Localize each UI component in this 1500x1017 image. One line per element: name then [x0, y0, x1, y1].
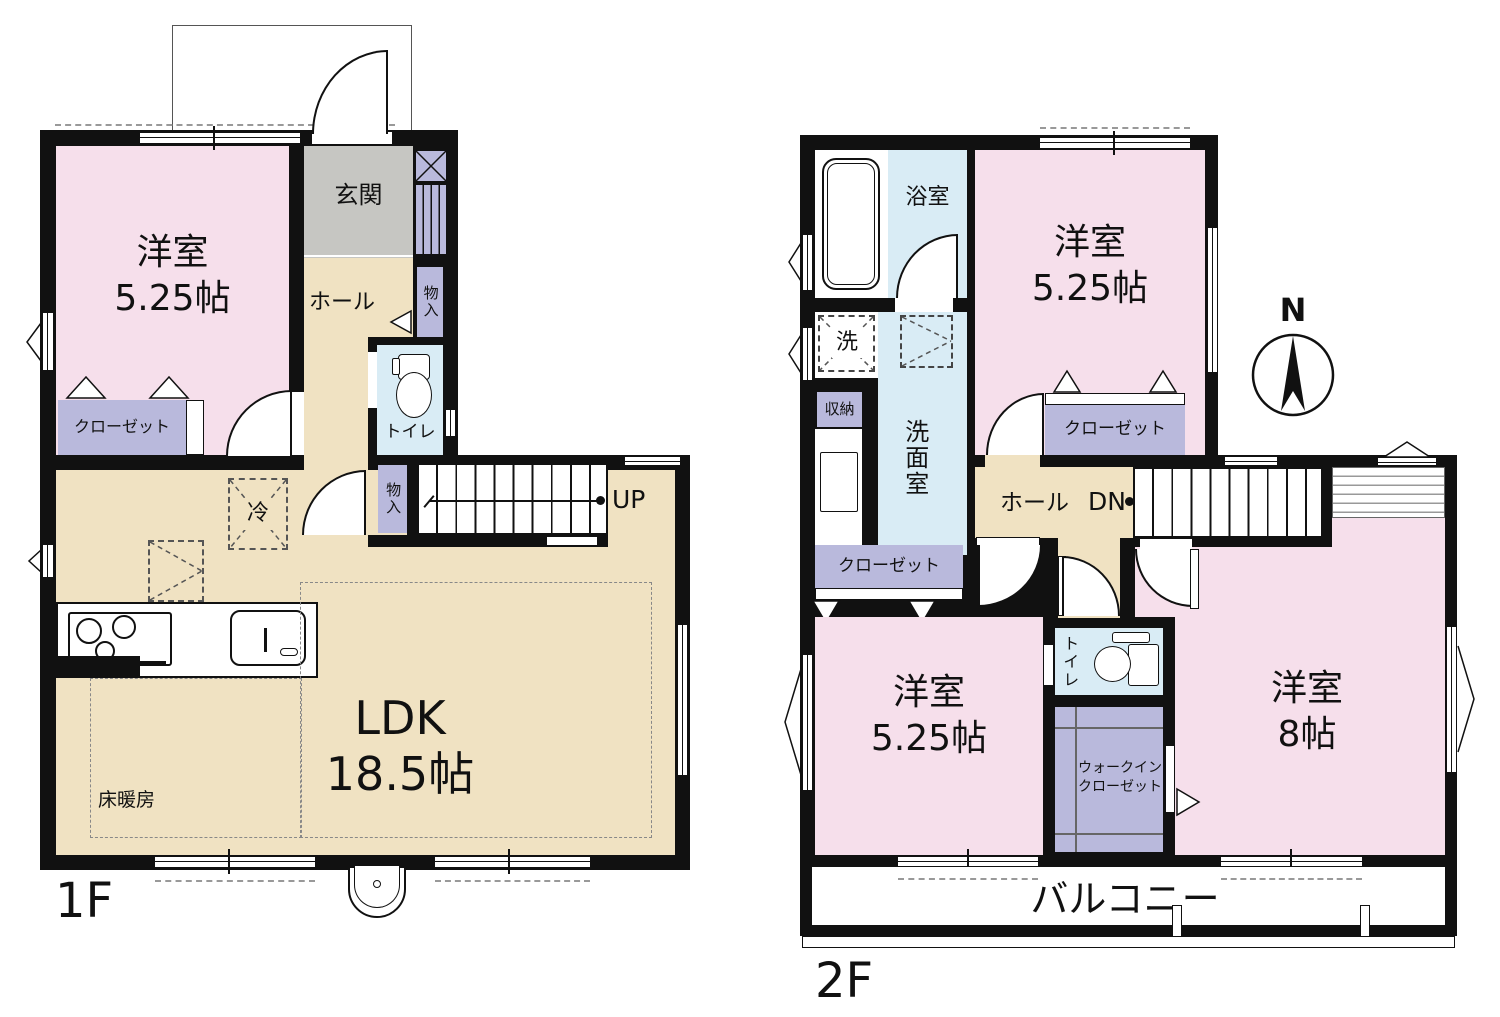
room-toilet-1f-label: トイレ	[377, 423, 443, 443]
window-casement-icon	[788, 334, 802, 374]
closet-1f-fold-icon	[66, 376, 190, 399]
window-1f-ldk-bottom-left	[155, 856, 315, 868]
window-casement-icon	[1457, 645, 1475, 753]
counter-strip	[1332, 467, 1445, 518]
stove-burner-1	[76, 618, 102, 644]
balcony-label: バルコニー	[925, 878, 1325, 922]
room-wic-line2: クローゼット	[1077, 779, 1163, 795]
window-casement-icon	[788, 242, 802, 282]
washbasin	[820, 452, 858, 512]
fridge-label: 冷	[243, 498, 273, 530]
window-2f-bedroom-se-right	[1446, 627, 1457, 772]
window-1f-bedroom-left	[42, 313, 54, 370]
window-2f-bedroom-north-right	[1207, 228, 1218, 372]
stairs-1f-up-label: UP	[612, 486, 645, 515]
room-hall-1f-label: ホール	[309, 290, 375, 315]
window-2f-bedroom-sw-left	[802, 655, 813, 790]
window-2f-counter-top	[1378, 457, 1436, 466]
closet-1f-door	[186, 400, 204, 455]
bathtub-inner	[827, 163, 875, 285]
toilet-1f-door-opening	[368, 352, 377, 408]
stairs-1f-arrow	[430, 500, 600, 502]
appliance-dashed-icon	[148, 540, 204, 602]
stairs-1f	[417, 463, 608, 535]
window-tick	[228, 849, 230, 874]
wic-line-h2	[1055, 833, 1163, 835]
stairs-2f	[1133, 467, 1323, 538]
sink-drain	[280, 648, 298, 656]
room-closet-west-label: クローゼット	[815, 545, 963, 588]
kitchen-sink	[230, 610, 306, 666]
room-wic-line1: ウォークイン	[1077, 760, 1163, 776]
eave-dashed-line	[435, 880, 590, 882]
toilet-2f-lid	[1112, 632, 1150, 643]
bedroom-north-door-opening	[985, 455, 1040, 467]
bathroom-door-opening	[895, 298, 953, 312]
compass-north-label: N	[1263, 292, 1323, 329]
room-bathroom-label: 浴室	[888, 185, 967, 210]
stairs-1f-arrow-dot	[596, 496, 605, 505]
stairs-1f-opening	[547, 537, 597, 545]
window-1f-ldk-right	[677, 625, 688, 775]
shoe-cabinet-x-icon	[415, 150, 447, 182]
window-2f-stairs-top	[1225, 456, 1277, 466]
room-closet-1f-label: クローゼット	[58, 400, 186, 455]
floor-2f-label: 2F	[815, 954, 873, 1009]
room-toilet-2f-label: トイレ	[1058, 630, 1080, 694]
room-storage-2f-label: 収納	[817, 392, 862, 427]
stove-burner-2	[112, 615, 136, 639]
window-tick	[508, 849, 510, 874]
wic-door-icon	[1176, 788, 1200, 816]
closet-north-fold-icon	[1053, 370, 1178, 393]
bedroom-se-door-opening	[1140, 539, 1192, 549]
closet-west-door	[815, 588, 963, 600]
toilet-2f-bowl	[1094, 646, 1131, 682]
room-storage-stairs-label: 物入	[379, 468, 406, 530]
toilet-2f-tank	[1128, 644, 1159, 686]
room-closet-north-label: クローゼット	[1045, 405, 1185, 455]
eave-dashed-line	[155, 880, 315, 882]
toilet-2f-door-opening	[1044, 645, 1053, 685]
window-tick	[1113, 131, 1115, 155]
compass-icon	[1251, 333, 1335, 417]
room-bedroom-north-name: 洋室	[990, 222, 1190, 263]
floor-heating-area-left	[90, 678, 302, 838]
window-awning-icon	[1383, 441, 1431, 458]
room-bedroom-sw-name: 洋室	[829, 672, 1029, 713]
room-hall-2f-label: ホール	[1000, 490, 1069, 516]
room-bedroom-sw-size: 5.25帖	[829, 718, 1029, 759]
window-1f-ldk-bottom-right	[435, 856, 590, 868]
window-1f-ldk-left	[42, 545, 54, 577]
window-casement-icon	[26, 322, 42, 362]
stairs-2f-dn-label: DN	[1088, 488, 1126, 517]
window-tick	[213, 126, 215, 150]
closet-north-door	[1045, 393, 1185, 405]
stairs-1f-divider	[407, 463, 417, 535]
room-bedroom-1f-name: 洋室	[60, 232, 285, 273]
kitchen-wall-stub	[56, 656, 140, 678]
floor-heating-area-right	[300, 582, 652, 838]
room-entrance-label: 玄関	[304, 146, 413, 246]
balcony-post-2	[1360, 905, 1370, 937]
window-1f-ldk-topright	[625, 456, 680, 466]
toilet-1f-bowl	[396, 372, 432, 418]
toilet-1f-window	[445, 410, 456, 436]
floor-heating-label: 床暖房	[98, 790, 155, 812]
room-hall-1f-ldk-gap	[304, 455, 368, 470]
window-casement-icon	[28, 549, 42, 573]
balcony-post-1	[1172, 905, 1182, 937]
outdoor-basin-drain	[373, 880, 381, 888]
window-2f-washer-left	[802, 328, 813, 380]
window-2f-bedroom-north-top	[1040, 137, 1190, 149]
window-2f-tub-left	[802, 235, 813, 290]
entrance-step-line	[304, 255, 413, 257]
room-bedroom-1f-size: 5.25帖	[60, 278, 285, 319]
room-bedroom-se-name: 洋室	[1207, 668, 1407, 709]
room-bedroom-north-size: 5.25帖	[990, 268, 1190, 309]
toilet-1f-handle	[392, 358, 400, 375]
room-washroom-label: 洗面室	[896, 402, 932, 514]
window-casement-icon	[784, 668, 802, 776]
washer-label: 洗	[832, 328, 862, 358]
floor-1f-label: 1F	[55, 874, 113, 929]
coat-shelf	[415, 184, 447, 255]
room-storage-hall-label: 物入	[418, 272, 442, 332]
washroom-dashed-icon	[900, 315, 953, 368]
sink-faucet	[264, 628, 267, 652]
eave-dashed-line	[1040, 127, 1190, 129]
bedroom-se-door-leaf	[1190, 549, 1199, 609]
floor-plan-canvas: 洋室 5.25帖 クローゼット 玄関 ホール 物入	[0, 0, 1500, 1017]
room-bedroom-se-a	[1332, 518, 1445, 547]
storage-hall-door-icon	[390, 310, 412, 334]
window-1f-bedroom-top	[140, 132, 300, 144]
wic-door	[1165, 745, 1175, 813]
room-bedroom-se-size: 8帖	[1207, 714, 1407, 755]
balcony-skirt	[802, 936, 1455, 948]
wic-line-h1	[1055, 727, 1163, 729]
room-hall-1f-b	[304, 337, 368, 455]
